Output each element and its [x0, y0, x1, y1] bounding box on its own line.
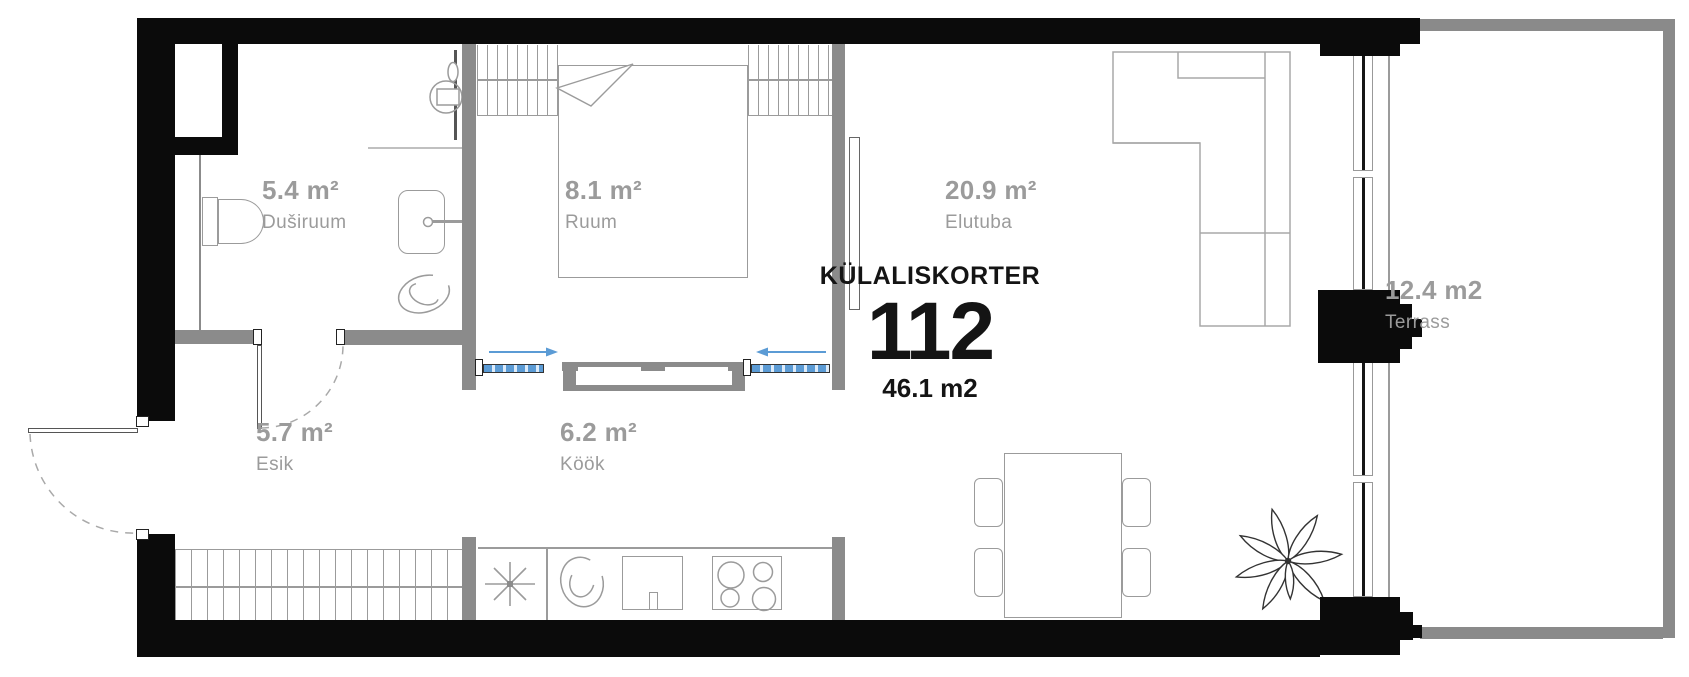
bath-door-swing-arc — [261, 346, 343, 428]
room-label-elutuba: 20.9 m² Elutuba — [945, 176, 1037, 234]
jamb-sliding-left — [475, 359, 483, 376]
room-name: Köök — [560, 454, 637, 476]
room-area: 12.4 m2 — [1385, 276, 1483, 304]
entry-door-swing-arc — [30, 434, 137, 533]
jamb-bath-left — [253, 329, 262, 345]
room-name: Terrass — [1385, 312, 1483, 334]
unit-info: KÜLALISKORTER 112 46.1 m2 — [760, 262, 1100, 404]
room-label-ruum: 8.1 m² Ruum — [565, 176, 642, 234]
jamb-entry-top — [136, 416, 149, 427]
room-label-terrass: 12.4 m2 Terrass — [1385, 276, 1483, 334]
room-area: 5.4 m² — [262, 176, 347, 204]
room-label-esik: 5.7 m² Esik — [256, 418, 333, 476]
room-area: 20.9 m² — [945, 176, 1037, 204]
jamb-bath-right — [336, 329, 345, 345]
room-area: 8.1 m² — [565, 176, 642, 204]
room-name: Esik — [256, 454, 333, 476]
room-name: Duširuum — [262, 212, 347, 234]
unit-number: 112 — [760, 293, 1100, 371]
room-label-dushiruum: 5.4 m² Duširuum — [262, 176, 347, 234]
arrow-right-icon — [546, 348, 558, 357]
room-name: Ruum — [565, 212, 642, 234]
unit-total-area: 46.1 m2 — [760, 373, 1100, 404]
floor-plan: 5.4 m² Duširuum 8.1 m² Ruum 20.9 m² Elut… — [0, 0, 1689, 677]
room-area: 5.7 m² — [256, 418, 333, 446]
jamb-sliding-right — [743, 359, 751, 376]
room-label-kook: 6.2 m² Köök — [560, 418, 637, 476]
room-name: Elutuba — [945, 212, 1037, 234]
room-area: 6.2 m² — [560, 418, 637, 446]
jamb-entry-bottom — [136, 529, 149, 540]
